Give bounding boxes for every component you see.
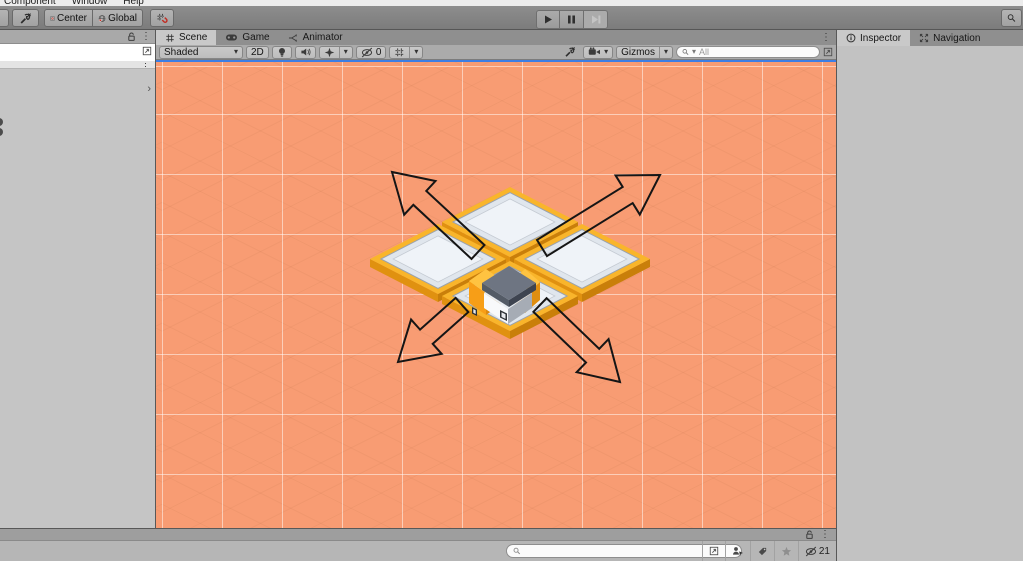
- play-controls: [536, 10, 608, 29]
- globe-icon: [98, 13, 106, 24]
- flyout-window-icon[interactable]: [823, 47, 833, 57]
- hidden-objects-counter[interactable]: 21: [798, 541, 836, 561]
- toggle-2d-button[interactable]: 2D: [246, 46, 269, 59]
- tab-game-label: Game: [242, 32, 269, 43]
- left-panel: ⋮ ⋮ ›: [0, 30, 155, 528]
- lock-open-icon[interactable]: [805, 530, 814, 540]
- scene-grid-dropdown[interactable]: ▾: [389, 46, 423, 59]
- assets-person-icon: [732, 546, 744, 557]
- separator: [659, 47, 660, 58]
- focused-view-highlight: [156, 60, 836, 62]
- select-dependencies-button[interactable]: [725, 541, 750, 561]
- transform-tool-button-partial[interactable]: [0, 9, 9, 27]
- pivot-rotation-global-button[interactable]: Global: [93, 9, 143, 27]
- tab-scene-label: Scene: [179, 32, 207, 43]
- left-panel-header: ⋮: [0, 30, 155, 44]
- tag-icon: [757, 546, 768, 557]
- gizmos-label: Gizmos: [621, 47, 655, 58]
- scene-panel: Scene Game Animator ⋮ Shaded ▾ 2D: [156, 30, 836, 528]
- inspector-panel: Inspector Navigation: [837, 30, 1023, 561]
- left-search-input[interactable]: [0, 48, 155, 61]
- gamepad-icon: [225, 33, 238, 42]
- main-toolbar: Center Global: [0, 6, 1023, 30]
- scene-effects-dropdown[interactable]: ▾: [319, 46, 353, 59]
- bottom-icon-group: 21: [702, 541, 836, 561]
- caret-down-icon: ▾: [234, 48, 238, 56]
- scene-view-toolbar: Shaded ▾ 2D ▾: [156, 45, 836, 60]
- camera-icon: [588, 47, 601, 57]
- caret-down-icon: ▾: [414, 48, 418, 56]
- gizmos-dropdown[interactable]: Gizmos ▾: [616, 46, 673, 59]
- pause-icon: [567, 15, 576, 24]
- bottom-panel: ⋮: [0, 529, 836, 561]
- left-search-row: [0, 44, 155, 58]
- scene-search-input[interactable]: [699, 47, 814, 57]
- search-icon: [513, 547, 521, 555]
- caret-down-icon: ▾: [604, 48, 608, 56]
- play-icon: [544, 15, 553, 24]
- hidden-count: 0: [376, 47, 382, 58]
- 2d-label: 2D: [251, 47, 264, 58]
- play-button[interactable]: [536, 10, 560, 29]
- custom-tools-button[interactable]: [12, 9, 39, 27]
- scene-3d-content: [156, 60, 836, 528]
- bottom-toolbar: 21: [0, 541, 836, 561]
- scene-tabbar-menu-icon[interactable]: ⋮: [821, 33, 831, 43]
- caret-down-icon: ▾: [344, 48, 348, 56]
- tab-navigation-label: Navigation: [933, 33, 980, 44]
- scene-grid-icon: [165, 33, 175, 43]
- star-icon: [781, 546, 792, 557]
- editor-search-button[interactable]: [1001, 9, 1022, 27]
- grid-snap-icon: [156, 12, 168, 25]
- scene-camera-tools-button[interactable]: [560, 46, 580, 59]
- grid-snapping-button[interactable]: [150, 9, 174, 27]
- panel-menu-icon[interactable]: ⋮: [820, 530, 830, 540]
- animator-icon: [288, 33, 299, 43]
- clipped-item-glyph: [0, 118, 4, 138]
- search-icon: [1007, 12, 1016, 24]
- info-icon: [846, 33, 856, 43]
- hidden-objects-count: 21: [819, 546, 830, 557]
- flyout-window-icon[interactable]: [142, 46, 152, 56]
- scene-camera-dropdown[interactable]: ▾: [583, 46, 613, 59]
- scene-tab-bar: Scene Game Animator ⋮: [156, 30, 836, 45]
- search-icon: [682, 48, 689, 56]
- panel-menu-icon[interactable]: ⋮: [141, 32, 151, 42]
- scene-lighting-toggle[interactable]: [272, 46, 292, 59]
- tab-animator-label: Animator: [303, 32, 343, 43]
- asset-labels-button[interactable]: [750, 541, 774, 561]
- pivot-icon: [50, 13, 55, 24]
- tab-scene[interactable]: Scene: [156, 30, 216, 45]
- wrench-x-icon: [564, 46, 576, 58]
- tab-inspector-label: Inspector: [860, 33, 901, 44]
- pivot-rotation-global-label: Global: [108, 13, 137, 24]
- scene-audio-toggle[interactable]: [295, 46, 316, 59]
- lock-open-icon[interactable]: [127, 32, 136, 42]
- grid-fade-icon: [394, 47, 405, 58]
- divider-right[interactable]: [836, 30, 837, 561]
- effects-sparkle-icon: [324, 47, 335, 58]
- tab-animator[interactable]: Animator: [279, 30, 352, 45]
- tab-navigation[interactable]: Navigation: [910, 30, 989, 46]
- tab-game[interactable]: Game: [216, 30, 278, 45]
- pivot-center-label: Center: [57, 13, 87, 24]
- eye-hidden-icon: [805, 546, 817, 557]
- inspector-content: [837, 46, 1023, 561]
- search-filter-caret-icon[interactable]: ▾: [692, 48, 696, 56]
- left-panel-content[interactable]: ›: [0, 69, 155, 528]
- scene-search-field[interactable]: ▾: [676, 46, 820, 58]
- step-button[interactable]: [584, 10, 608, 29]
- draw-mode-dropdown[interactable]: Shaded ▾: [159, 46, 243, 59]
- expand-chevron-icon[interactable]: ›: [147, 83, 151, 95]
- caret-down-icon: ▾: [664, 48, 668, 56]
- inspector-tab-bar: Inspector Navigation: [837, 30, 1023, 46]
- wrench-icon: [19, 12, 32, 25]
- flyout-window-icon: [709, 546, 719, 556]
- step-icon: [591, 15, 601, 24]
- light-bulb-icon: [277, 47, 287, 58]
- separator: [339, 47, 340, 58]
- scene-visibility-toggle[interactable]: 0: [356, 46, 387, 59]
- tab-inspector[interactable]: Inspector: [837, 30, 910, 46]
- speaker-icon: [300, 47, 311, 57]
- eye-hidden-icon: [361, 47, 373, 58]
- pause-button[interactable]: [560, 10, 584, 29]
- bottom-panel-header: ⋮: [0, 529, 836, 541]
- scene-viewport[interactable]: [156, 60, 836, 528]
- pivot-center-button[interactable]: Center: [44, 9, 93, 27]
- draw-mode-label: Shaded: [164, 47, 198, 58]
- flyout-button[interactable]: [702, 541, 725, 561]
- navigation-arrows-icon: [919, 33, 929, 43]
- favorites-button[interactable]: [774, 541, 798, 561]
- separator: [409, 47, 410, 58]
